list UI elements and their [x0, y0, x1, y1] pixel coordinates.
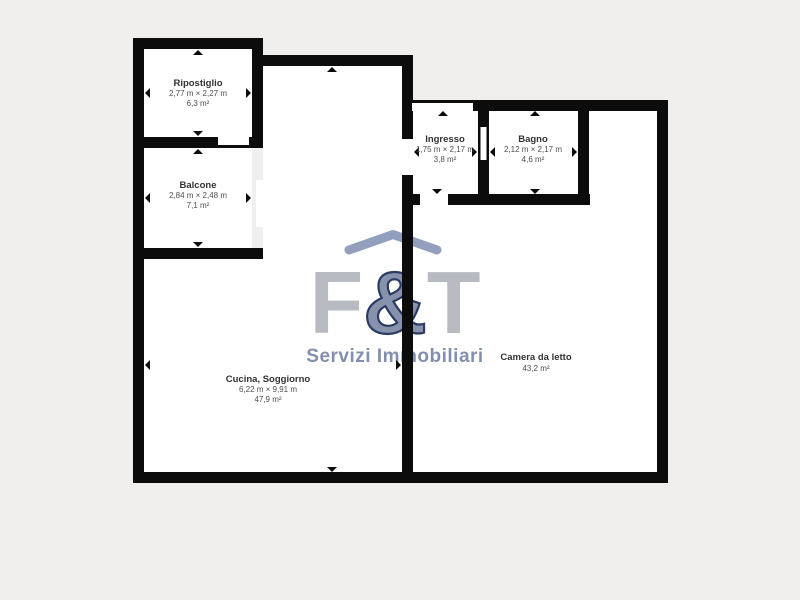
opening-ingresso-to-camera-door	[420, 194, 448, 205]
wall-ripostiglio-top	[133, 38, 263, 49]
room-area: 6,3 m²	[187, 99, 210, 108]
wall-balcone-bottom	[133, 248, 263, 259]
room-title: Camera da letto	[500, 352, 571, 363]
room-area: 4,6 m²	[522, 155, 545, 164]
logo-brand: F&T	[309, 253, 480, 352]
room-area: 7,1 m²	[187, 201, 210, 210]
opening-ripostiglio-balcone	[218, 137, 249, 145]
wall-left-exterior	[133, 38, 144, 483]
room-area: 3,8 m²	[434, 155, 457, 164]
room-area: 47,9 m²	[254, 395, 281, 404]
room-title: Balcone	[180, 180, 217, 191]
opening-main-to-ingresso-door	[402, 139, 413, 175]
logo-brand-t: T	[427, 253, 481, 352]
floor-plan: F&T Servizi Immobiliari	[0, 0, 800, 600]
opening-balcone-door	[256, 180, 263, 227]
room-dimensions: 6,22 m × 9,91 m	[239, 385, 297, 394]
floorplan-canvas: F&T Servizi Immobiliari	[0, 0, 800, 600]
room-title: Cucina, Soggiorno	[226, 374, 311, 385]
room-dimensions: 2,84 m × 2,48 m	[169, 191, 227, 200]
room-dimensions: 1,75 m × 2,17 m	[416, 145, 474, 154]
wall-main-top	[252, 55, 413, 66]
wall-bagno-right	[578, 100, 589, 205]
room-title: Bagno	[518, 134, 548, 145]
watermark-logo: F&T Servizi Immobiliari	[306, 235, 483, 368]
logo-tagline: Servizi Immobiliari	[306, 346, 483, 367]
opening-ingresso-to-bagno-door	[481, 127, 487, 160]
wall-bottom-exterior	[133, 472, 668, 483]
opening-ingresso-window	[412, 103, 473, 111]
wall-center-vertical	[402, 55, 413, 483]
wall-ripostiglio-right	[252, 38, 263, 148]
logo-brand-f: F	[309, 253, 363, 352]
wall-right-exterior	[657, 100, 668, 483]
room-dimensions: 2,77 m × 2,27 m	[169, 89, 227, 98]
room-title: Ripostiglio	[173, 78, 222, 89]
room-dimensions: 2,12 m × 2,17 m	[504, 145, 562, 154]
room-title: Ingresso	[425, 134, 465, 145]
logo-brand-ampersand: &	[363, 253, 427, 352]
room-area: 43,2 m²	[522, 364, 549, 373]
